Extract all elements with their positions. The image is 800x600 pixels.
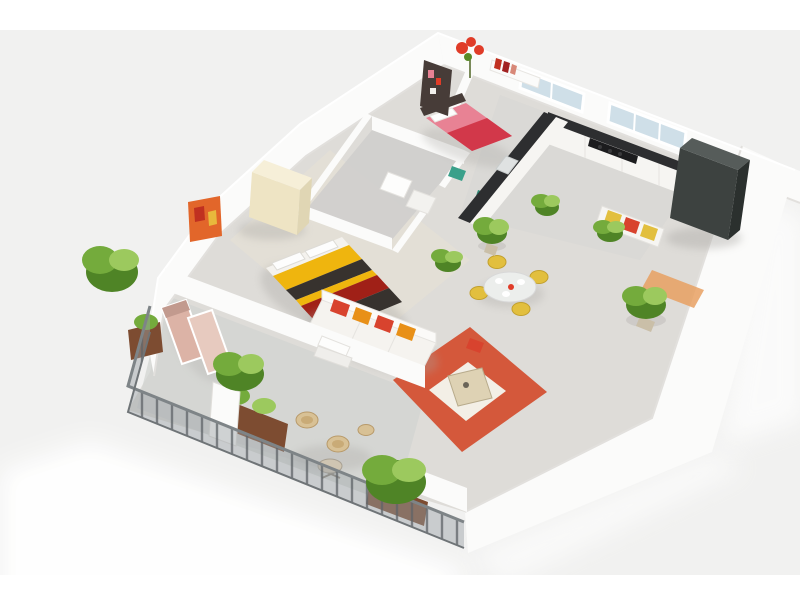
plant-right-foliage-light bbox=[643, 287, 667, 305]
flower-blob-3 bbox=[474, 45, 484, 55]
flower-blob-2 bbox=[466, 37, 476, 47]
wall-art-red-block bbox=[194, 206, 205, 222]
burner-3 bbox=[618, 152, 622, 156]
plate-1 bbox=[495, 278, 503, 284]
plant-hs-foliage-light bbox=[445, 251, 463, 263]
window-2-mullion-b bbox=[659, 122, 660, 141]
plate-2 bbox=[517, 279, 525, 285]
floor-plan-render bbox=[0, 0, 800, 600]
flower-blob-1 bbox=[456, 42, 468, 54]
plate-3 bbox=[502, 291, 510, 297]
plant-dining-foliage-light bbox=[607, 221, 625, 233]
bush-bb-light bbox=[392, 458, 426, 482]
burner-1 bbox=[598, 145, 602, 149]
wall-art bbox=[188, 196, 222, 242]
planter-mid-plant-2 bbox=[252, 398, 276, 414]
plant-kitchen-foliage-light bbox=[544, 195, 560, 207]
wicker-chair-1 bbox=[296, 412, 318, 428]
ottoman-tray-dot bbox=[463, 382, 469, 388]
dining-chair-north bbox=[488, 256, 506, 269]
plant-hall-foliage-light bbox=[489, 219, 509, 235]
wicker-chair-1-cushion bbox=[301, 416, 313, 424]
wicker-chair-2 bbox=[327, 436, 349, 452]
wardrobe-deco-white bbox=[430, 88, 436, 94]
flower-leaf bbox=[464, 53, 472, 61]
wall-art-yellow-block bbox=[208, 210, 217, 226]
wicker-chair-2-cushion bbox=[332, 440, 344, 448]
bush-bm-light bbox=[238, 354, 264, 374]
table-centerpiece bbox=[508, 284, 514, 290]
window-1-mullion bbox=[551, 81, 552, 99]
burner-2 bbox=[608, 149, 612, 153]
wardrobe-deco-pink bbox=[428, 70, 434, 78]
bush-lc-light bbox=[109, 249, 139, 271]
window-2-mullion-a bbox=[634, 113, 635, 131]
dining-chair-south bbox=[512, 303, 530, 316]
stool bbox=[358, 425, 374, 436]
wardrobe-deco-red bbox=[436, 78, 441, 85]
render-canvas bbox=[0, 0, 800, 600]
